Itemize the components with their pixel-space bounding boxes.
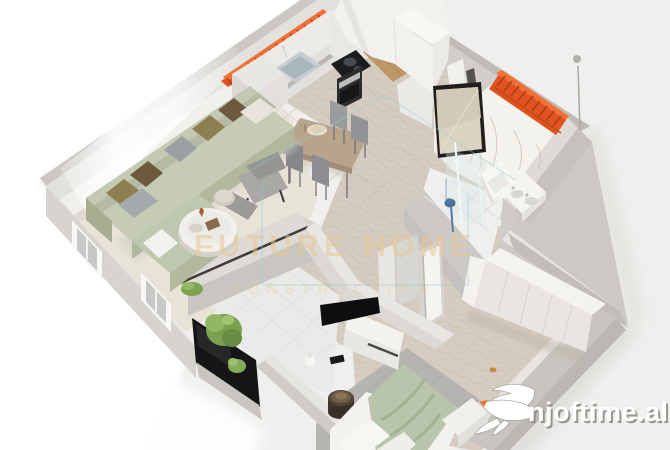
svg-text:CONSTRUCTION: CONSTRUCTION <box>230 281 435 298</box>
svg-text:njoftime.al: njoftime.al <box>528 397 669 427</box>
svg-text:FUTURE HOME: FUTURE HOME <box>194 228 476 263</box>
